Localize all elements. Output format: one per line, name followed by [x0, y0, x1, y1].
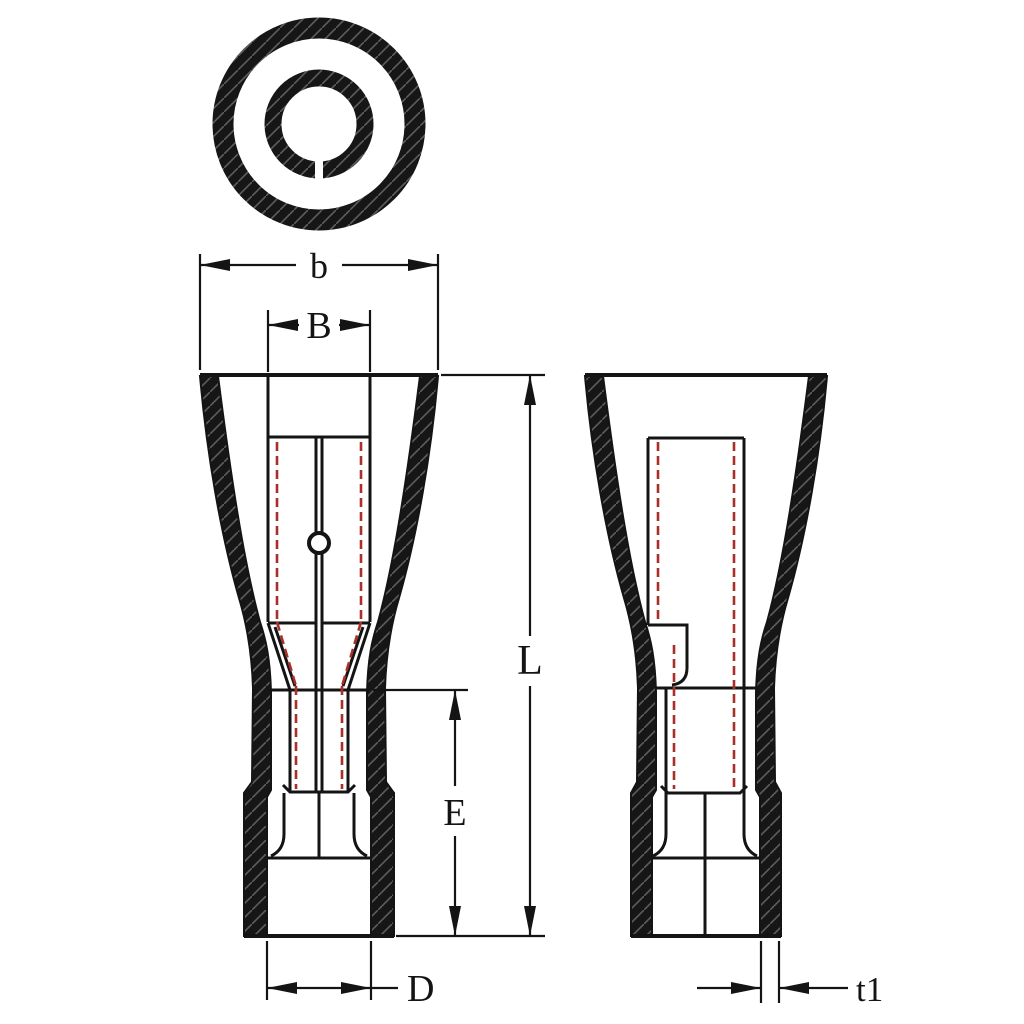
dim-label-b: b	[310, 246, 328, 286]
front-view	[200, 375, 438, 936]
side-right-wall	[756, 376, 827, 936]
t1-arrow-left	[731, 982, 761, 994]
front-dimple-detent	[309, 533, 329, 553]
front-barrel-end-chamfer	[283, 785, 355, 792]
front-left-wall	[200, 376, 271, 936]
side-left-wall	[585, 376, 656, 936]
dimension-D: D	[267, 941, 434, 1010]
side-barrel-right-edge	[744, 438, 757, 856]
L-arrow-top	[524, 375, 536, 405]
drawing-canvas: b B L E	[0, 0, 1024, 1024]
terminal-technical-drawing: b B L E	[0, 0, 1024, 1024]
L-arrow-bottom	[524, 906, 536, 936]
E-arrow-bottom	[449, 906, 461, 936]
B-arrow-right	[340, 319, 370, 331]
B-arrow-left	[268, 319, 298, 331]
E-arrow-top	[449, 690, 461, 720]
side-view-hidden-lines	[658, 442, 734, 789]
front-sleeve-flare-left	[271, 793, 284, 856]
side-view-edges	[585, 375, 827, 936]
side-view	[585, 375, 827, 936]
dim-label-t1: t1	[856, 970, 883, 1009]
dim-label-E: E	[443, 792, 466, 834]
b-arrow-right	[408, 259, 438, 271]
dim-label-D: D	[407, 968, 434, 1010]
D-arrow-right	[341, 982, 371, 994]
dim-label-B: B	[306, 305, 331, 347]
dim-label-L: L	[517, 638, 543, 684]
outer-insulation-ring	[223, 28, 415, 220]
D-arrow-left	[267, 982, 297, 994]
dimension-t1: t1	[697, 941, 883, 1009]
b-arrow-left	[200, 259, 230, 271]
front-sleeve-flare-right	[354, 793, 367, 856]
t1-arrow-right	[779, 982, 809, 994]
top-view	[223, 28, 415, 220]
front-view-edges	[200, 375, 438, 936]
front-right-wall	[367, 376, 438, 936]
dimension-B: B	[268, 305, 370, 372]
